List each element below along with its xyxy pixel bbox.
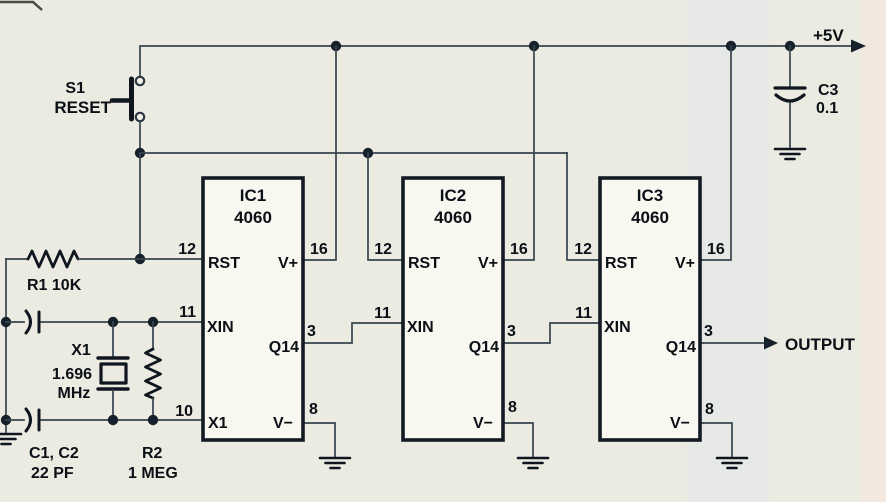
ic2-pin12-number: 12: [374, 241, 392, 258]
ic2-ref-label: IC2: [440, 186, 466, 205]
ic2-pin-vplus-label: V+: [478, 255, 498, 272]
ic1-pin11-number: 11: [179, 304, 196, 321]
junction-dot: [148, 415, 158, 425]
r2-ref-label: R2: [142, 445, 163, 462]
ic2-pin3-number: 3: [507, 323, 516, 340]
ic1-pin-vminus-label: V−: [273, 415, 293, 432]
ic1-pin8-number: 8: [309, 401, 318, 418]
ic3-pin16-number: 16: [707, 241, 725, 258]
circuit-schematic: +5V S1 RESET R1 10K: [0, 0, 886, 502]
ic1-pin-q14-label: Q14: [269, 339, 299, 356]
junction-dot: [108, 415, 118, 425]
c3-ref-label: C3: [818, 82, 839, 99]
power-rail-label: +5V: [813, 26, 844, 45]
switch-name-label: RESET: [54, 98, 111, 117]
r1-label: R1 10K: [27, 277, 82, 294]
ic2-pin-vminus-label: V−: [473, 415, 493, 432]
ic1-pin16-number: 16: [310, 241, 328, 258]
ic3-pin11-number: 11: [575, 305, 592, 322]
ic1-pin12-number: 12: [178, 241, 196, 258]
ic2-pin-q14-label: Q14: [469, 339, 499, 356]
ic2-pin8-number: 8: [508, 399, 517, 416]
ic1-ref-label: IC1: [240, 186, 266, 205]
ic3-pin8-number: 8: [705, 401, 714, 418]
ic3-ref-label: IC3: [637, 186, 663, 205]
page-edge-strip: [861, 0, 886, 502]
ic1-pin-rst-label: RST: [208, 255, 240, 272]
ic1-part-label: 4060: [234, 208, 272, 227]
crystal-ref-label: X1: [71, 342, 91, 359]
ic2-part-label: 4060: [434, 208, 472, 227]
ic1-pin-vplus-label: V+: [278, 255, 298, 272]
c3-value-label: 0.1: [816, 100, 838, 117]
c1-c2-value-label: 22 PF: [31, 465, 74, 482]
ic3-pin12-number: 12: [574, 241, 592, 258]
ic3-pin-vminus-label: V−: [670, 415, 690, 432]
ic3-pin-q14-label: Q14: [666, 339, 696, 356]
ic1-pin3-number: 3: [307, 323, 316, 340]
switch-contact: [136, 77, 144, 85]
c1-c2-refs-label: C1, C2: [29, 445, 79, 462]
ic3-pin-rst-label: RST: [605, 255, 637, 272]
ic3-pin-vplus-label: V+: [675, 255, 695, 272]
ic3-pin-xin-label: XIN: [604, 319, 631, 336]
ic1-pin10-number: 10: [175, 403, 193, 420]
ic1-pin-xin-label: XIN: [207, 319, 234, 336]
ic2-pin16-number: 16: [510, 241, 528, 258]
ic1-pin-x1-label: X1: [208, 415, 228, 432]
ic3-pin3-number: 3: [704, 323, 713, 340]
r2-value-label: 1 MEG: [128, 465, 178, 482]
ic3-part-label: 4060: [631, 208, 669, 227]
crystal-freq-label: 1.696: [52, 366, 92, 383]
crystal-unit-label: MHz: [58, 385, 91, 402]
switch-contact: [136, 113, 144, 121]
ic2-pin-xin-label: XIN: [407, 319, 434, 336]
schematic-page: +5V S1 RESET R1 10K: [0, 0, 886, 502]
ic2-pin11-number: 11: [374, 305, 391, 322]
output-label: OUTPUT: [785, 335, 856, 354]
switch-ref-label: S1: [65, 80, 85, 97]
ic2-pin-rst-label: RST: [408, 255, 440, 272]
